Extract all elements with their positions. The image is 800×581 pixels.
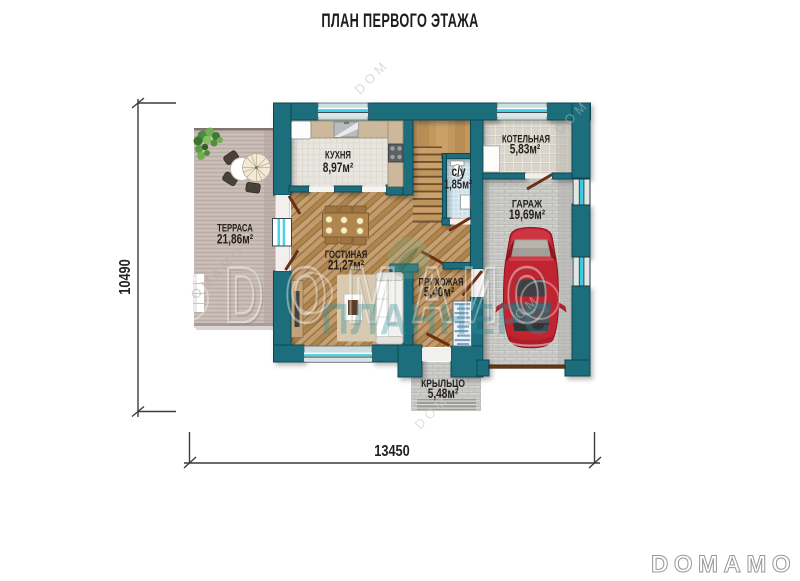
- svg-text:с/у: с/у: [451, 164, 465, 180]
- svg-text:5,83м²: 5,83м²: [510, 141, 541, 157]
- svg-text:19,69м²: 19,69м²: [509, 207, 545, 223]
- svg-text:10490: 10490: [117, 259, 135, 295]
- svg-text:8,97м²: 8,97м²: [323, 160, 354, 176]
- svg-text:DOMAMO: DOMAMO: [651, 551, 796, 578]
- svg-text:1,85м²: 1,85м²: [444, 178, 472, 192]
- svg-text:13450: 13450: [374, 443, 410, 461]
- svg-text:ПЛАН ПЕРВОГО ЭТАЖА: ПЛАН ПЕРВОГО ЭТАЖА: [321, 11, 478, 32]
- svg-text:DOM: DOM: [352, 57, 393, 98]
